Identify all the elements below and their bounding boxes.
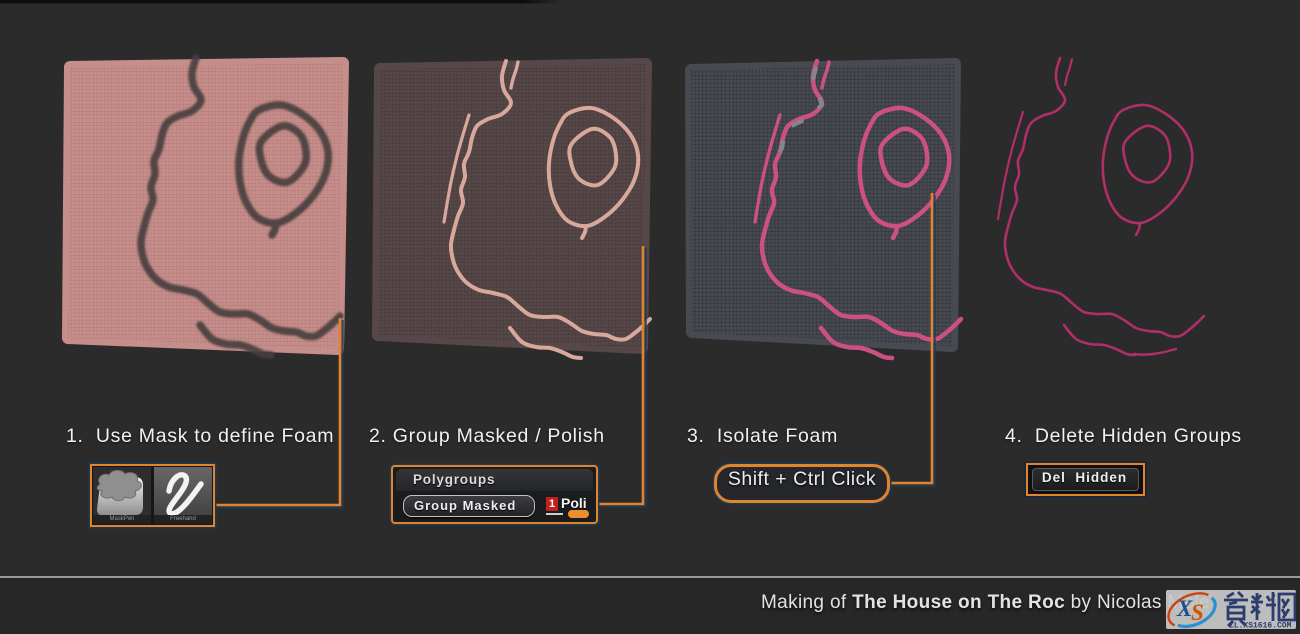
svg-text:ZL.XS1616.COM: ZL.XS1616.COM — [1229, 622, 1292, 630]
svg-text:S: S — [1191, 600, 1204, 625]
